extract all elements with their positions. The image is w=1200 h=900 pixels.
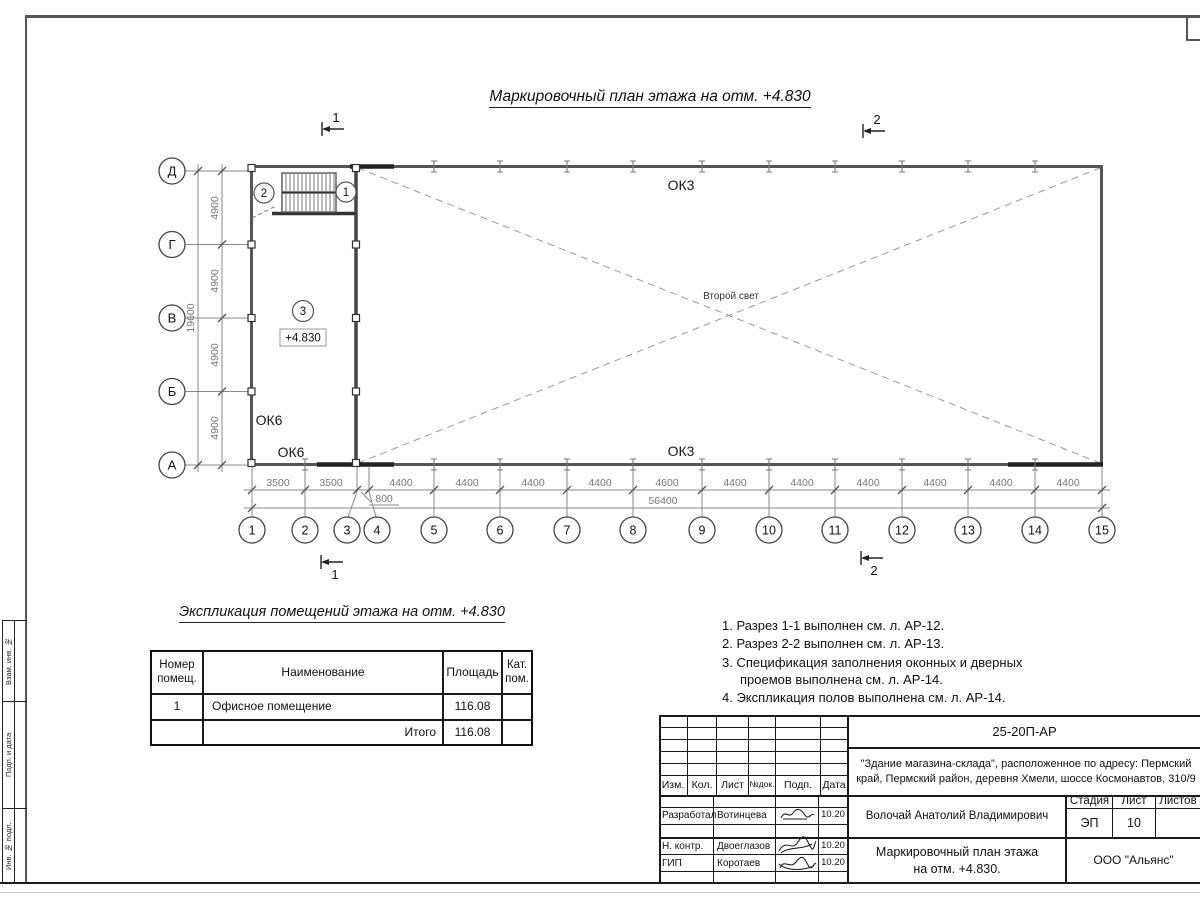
section-1-bottom: 1 (331, 567, 338, 582)
drawing-title: Маркировочный план этажа на отм. +4.830. (872, 839, 1042, 882)
axis-col-15: 15 (1095, 524, 1109, 538)
explication-title-wrap: Экспликация помещений этажа на отм. +4.8… (150, 603, 534, 621)
drawing-sheet: Взам. инв. № Подп. и дата Инв. № подл. М… (0, 0, 1200, 900)
sheets-header: Листов (1156, 795, 1200, 808)
role-gip: ГИП (662, 856, 713, 871)
label-ok3-top: ОК3 (668, 177, 695, 193)
axis-row-b: Б (168, 384, 177, 399)
dim-bottom-4: 4400 (521, 477, 545, 489)
side-label-vzam: Взам. инв. № (3, 621, 14, 701)
dim-bottom-10: 4400 (923, 477, 947, 489)
explication-table: Номер помещ. Наименование Площадь Кат. п… (150, 650, 533, 746)
axis-col-1: 1 (249, 524, 256, 538)
signature-developer (777, 806, 817, 824)
dim-left-1: 4900 (209, 269, 221, 293)
stage-header: Стадия (1067, 795, 1112, 808)
signature-gip (776, 854, 818, 874)
dim-bottom-11: 4400 (989, 477, 1013, 489)
label-ok3-bottom: ОК3 (668, 443, 695, 459)
dim-bottom-5: 4400 (588, 477, 612, 489)
frame-bottom (0, 882, 1200, 884)
explication-title: Экспликация помещений этажа на отм. +4.8… (179, 604, 505, 623)
section-2-bottom: 2 (870, 563, 877, 578)
name-gip: Коротаев (717, 856, 775, 871)
room-elevation: +4.830 (285, 333, 321, 345)
dim-bottom-12: 4400 (1056, 477, 1080, 489)
dim-left-0: 4900 (209, 196, 221, 220)
stair-tag-left: 2 (261, 188, 267, 200)
side-label-inv: Инв. № подл. (3, 809, 14, 883)
explication-row-area: 116.08 (444, 695, 501, 719)
company-name: ООО "Альянс" (1067, 839, 1200, 882)
rev-header-list: Лист (717, 775, 748, 795)
label-ok6-lower: ОК6 (278, 444, 305, 460)
room-tag: 3 (300, 306, 306, 318)
dim-left-3: 4900 (209, 416, 221, 440)
axis-col-9: 9 (699, 524, 706, 538)
note-3: 3. Спецификация заполнения оконных и две… (722, 654, 1046, 689)
section-1-top: 1 (332, 110, 339, 125)
axis-col-10: 10 (762, 524, 776, 538)
note-4: 4. Экспликация полов выполнена см. л. АР… (722, 689, 1046, 706)
rev-header-dok: №док. (749, 775, 775, 795)
void-diagonals (358, 168, 1100, 463)
axis-col-11: 11 (829, 524, 842, 538)
explication-row-cat (503, 695, 531, 719)
row-axis-bubbles: Д Г В Б А (159, 158, 185, 478)
dim-bottom-8: 4400 (790, 477, 814, 489)
col-axis-bubbles: 1 2 3 4 5 6 7 8 9 10 11 12 13 14 15 (239, 517, 1115, 543)
axis-col-3: 3 (344, 524, 351, 538)
note-1: 1. Разрез 1-1 выполнен см. л. АР-12. (722, 617, 1046, 634)
note-2: 2. Разрез 2-2 выполнен см. л. АР-13. (722, 635, 1046, 652)
floor-plan: 4900 4900 4900 4900 19600 (0, 0, 1200, 620)
stage-value: ЭП (1067, 809, 1112, 837)
axis-row-a: А (168, 458, 177, 473)
axis-row-d: Д (168, 164, 177, 179)
sheet-number: 10 (1113, 809, 1155, 837)
label-second-light: Второй свет (703, 291, 759, 302)
axis-extension-lines-cols (252, 467, 1102, 517)
notes-list: 1. Разрез 1-1 выполнен см. л. АР-12. 2. … (722, 617, 1046, 707)
explication-total-label: Итого (204, 721, 442, 744)
axis-col-8: 8 (630, 524, 637, 538)
rev-header-podp: Подп. (776, 775, 820, 795)
axis-col-4: 4 (374, 524, 381, 538)
sheet-header: Лист (1113, 795, 1155, 808)
sheet-edge (0, 892, 1200, 893)
axis-col-13: 13 (961, 524, 975, 538)
axis-col-5: 5 (431, 524, 438, 538)
title-block: Изм. Кол. Лист №док. Подп. Дата Разработ… (659, 715, 1200, 882)
stair-tag-right: 1 (343, 187, 349, 199)
date-gip: 10.20 (819, 856, 847, 871)
axis-row-g: Г (168, 237, 175, 252)
dim-left-2: 4900 (209, 343, 221, 367)
signature-ncontrol (776, 836, 818, 856)
frame-side-strip: Взам. инв. № Подп. и дата Инв. № подл. (2, 620, 27, 883)
name-ncontrol: Двоеглазов (717, 839, 775, 854)
client-name: Волочай Анатолий Владимирович (849, 797, 1065, 837)
explication-row-name: Офисное помещение (204, 695, 442, 719)
dim-bottom-2: 4400 (389, 477, 413, 489)
axis-col-6: 6 (497, 524, 504, 538)
doc-code: 25-20П-АР (849, 717, 1200, 747)
name-developer: Вотинцева (717, 807, 775, 824)
dim-left-total: 19600 (185, 303, 197, 332)
stairs (282, 173, 336, 212)
rev-header-kol: Кол. (688, 775, 716, 795)
walls-heavy-segments (317, 167, 1103, 465)
rev-header-izm: Изм. (659, 775, 687, 795)
dim-bottom-extra: 800 (375, 493, 393, 505)
axis-col-14: 14 (1028, 524, 1042, 538)
axis-col-7: 7 (564, 524, 571, 538)
project-address: "Здание магазина-склада", расположенное … (852, 749, 1200, 795)
role-developer: Разработал (662, 807, 713, 824)
dim-bottom-6: 4600 (655, 477, 679, 489)
dim-bottom-total: 56400 (648, 495, 677, 507)
explication-header-cat: Кат. пом. (503, 652, 531, 693)
axis-row-v: В (168, 311, 177, 326)
side-label-podp: Подп. и дата (3, 702, 14, 808)
date-ncontrol: 10.20 (819, 839, 847, 854)
explication-total-value: 116.08 (444, 721, 501, 744)
section-2-top: 2 (873, 112, 880, 127)
axis-col-2: 2 (302, 524, 309, 538)
dim-bottom-9: 4400 (856, 477, 880, 489)
dim-bottom-0: 3500 (266, 477, 290, 489)
rev-header-data: Дата (821, 775, 847, 795)
date-developer: 10.20 (819, 807, 847, 824)
explication-header-number: Номер помещ. (152, 652, 202, 693)
walls (250, 165, 1103, 466)
axis-col-12: 12 (895, 524, 909, 538)
role-ncontrol: Н. контр. (662, 839, 713, 854)
dim-bottom-1: 3500 (319, 477, 343, 489)
explication-header-name: Наименование (204, 652, 442, 693)
dim-bottom-3: 4400 (455, 477, 479, 489)
dim-bottom-7: 4400 (723, 477, 747, 489)
label-ok6-upper: ОК6 (256, 412, 283, 428)
explication-row-number: 1 (152, 695, 202, 719)
explication-header-area: Площадь (444, 652, 501, 693)
section-marks (321, 122, 885, 569)
